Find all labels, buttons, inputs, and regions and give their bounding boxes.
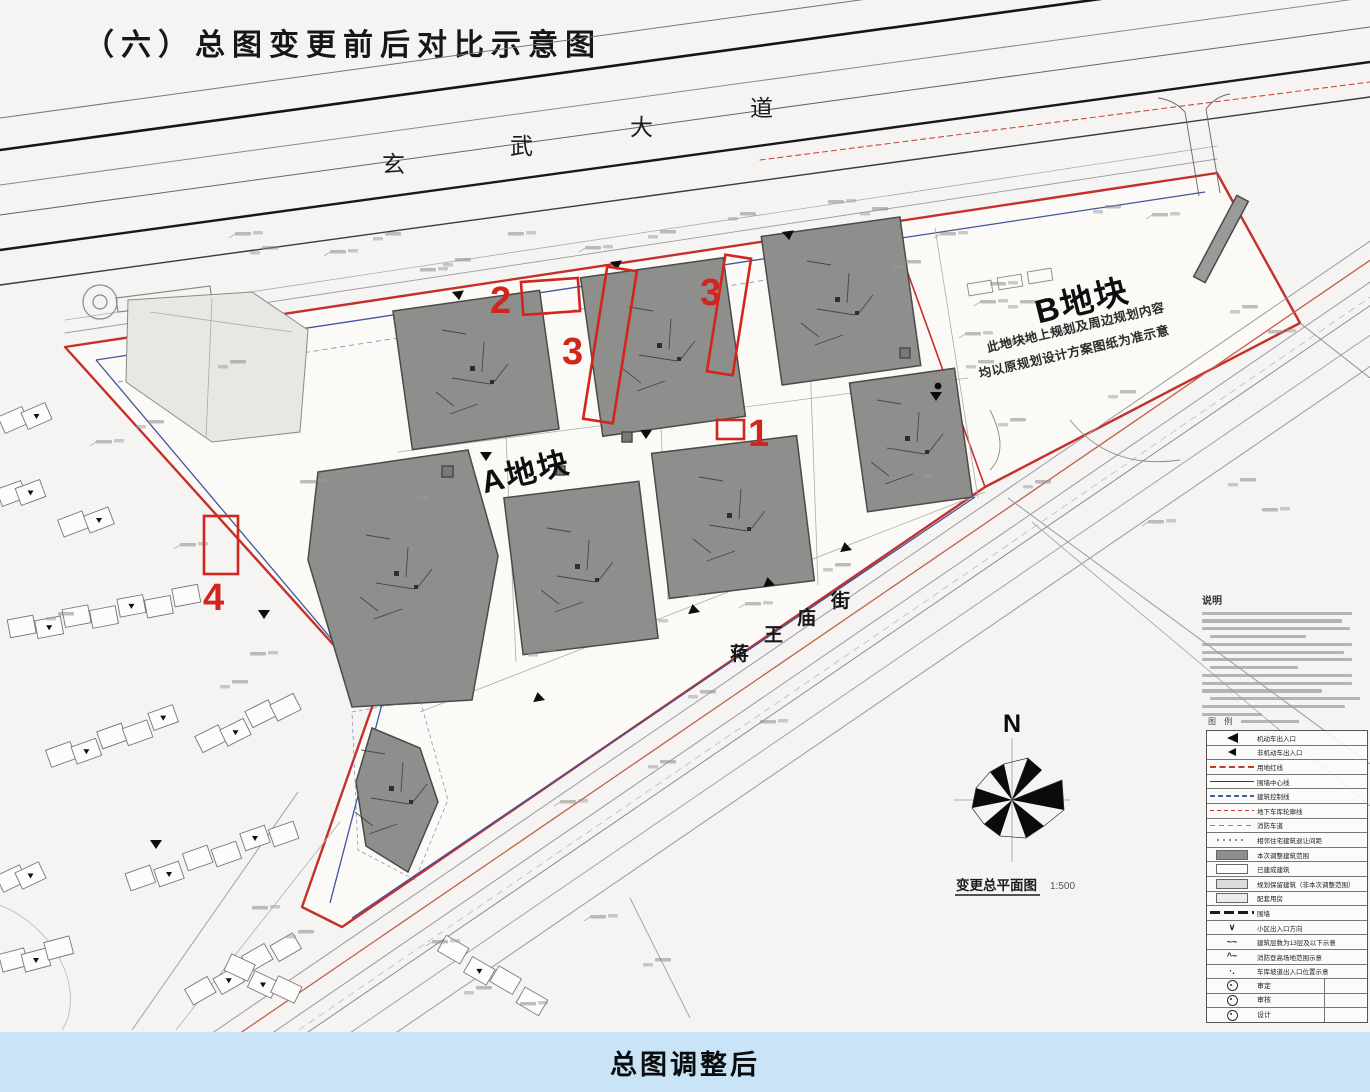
road-label-char: 大: [630, 115, 653, 140]
legend-row: 规划保留建筑（非本次调整范围）: [1207, 877, 1367, 892]
north-label: N: [1003, 710, 1021, 738]
footer-banner: 总图调整后: [0, 1032, 1370, 1092]
footer-banner-text: 总图调整后: [610, 1043, 760, 1082]
legend-heading: 图 例: [1208, 716, 1235, 727]
garage-outline-icon: [1210, 810, 1254, 811]
legend-footer-row: 审定: [1207, 979, 1367, 994]
bike-entry-icon: [1228, 748, 1236, 756]
legend-heading-rule: [1241, 720, 1299, 723]
stamp-icon: [1227, 995, 1238, 1006]
page: （六）总图变更前后对比示意图: [0, 0, 1370, 1092]
road-label-char: 道: [750, 96, 773, 121]
notes-text-line: [1210, 635, 1306, 638]
road-label-char: 街: [830, 589, 850, 612]
legend-row: ^~消防登高场地范围示意: [1207, 950, 1367, 965]
drawing-title-text: 变更总平面图: [956, 877, 1037, 893]
storey-mark-icon: ~~: [1227, 938, 1238, 947]
legend-row: 围墙中心线: [1207, 775, 1367, 790]
drawing-title: 变更总平面图 1:500: [955, 877, 1075, 895]
road-label-char: 庙: [797, 606, 816, 629]
adjusted-building-icon: [1216, 850, 1248, 860]
titleblock-divider: [1324, 994, 1367, 1008]
fire-lane-icon: [1210, 825, 1254, 826]
control-line-icon: [1210, 795, 1254, 796]
stamp-icon: [1227, 1010, 1238, 1021]
fence-icon: [1210, 911, 1254, 914]
notes-text-line: [1202, 619, 1342, 622]
legend-footer-row: 审核: [1207, 994, 1367, 1009]
legend-row: 用地红线: [1207, 760, 1367, 775]
notes-heading: 说明: [1202, 592, 1368, 607]
notes-text-line: [1202, 674, 1352, 677]
road-label-char: 蒋: [730, 642, 749, 665]
north-arrow: N: [954, 710, 1070, 862]
setback-icon: [1217, 839, 1247, 841]
titleblock-divider: [1324, 979, 1367, 993]
legend-row: 建筑控制线: [1207, 789, 1367, 804]
legend-row: 围墙: [1207, 906, 1367, 921]
legend-row: 配套用房: [1207, 892, 1367, 907]
notes-text-line: [1202, 705, 1345, 708]
legend-row: 本次调整建筑范围: [1207, 848, 1367, 863]
road-xuanwu-label: 玄 武 大 道: [382, 96, 773, 177]
notes-text-line: [1210, 697, 1360, 700]
legend-row: ∨小区出入口方向: [1207, 921, 1367, 936]
fire-area-icon: ^~: [1227, 952, 1238, 961]
legend-row: 非机动车出入口: [1207, 746, 1367, 761]
red-line-icon: [1210, 766, 1254, 768]
legend-row: ·.车库坡道出入口位置示意: [1207, 965, 1367, 980]
site-plan-drawing: 玄 武 大 道 蒋 王 庙 街 A地块 B地块 此地块地上规划及周边规划内容 均…: [0, 0, 1370, 1032]
notes-text-line: [1202, 627, 1350, 630]
legend-row: 已建成建筑: [1207, 862, 1367, 877]
legend-footer-row: 设计: [1207, 1008, 1367, 1022]
marker-number-1: 1: [748, 413, 769, 455]
legend-row: 相邻住宅建筑退让间距: [1207, 833, 1367, 848]
wall-line-icon: [1210, 781, 1254, 782]
vehicle-entry-icon: [1227, 733, 1238, 743]
legend-row: 消防车道: [1207, 819, 1367, 834]
ancillary-building-icon: [1216, 893, 1248, 903]
road-label-char: 武: [510, 134, 533, 159]
notes-text-line: [1202, 651, 1344, 654]
notes-text-line: [1202, 689, 1322, 692]
built-building-icon: [1216, 864, 1248, 874]
legend-table: 机动车出入口 非机动车出入口 用地红线 围墙中心线 建筑控制线 地下车库轮廓线 …: [1206, 730, 1368, 1023]
retained-building-icon: [1216, 879, 1248, 889]
notes-text-line: [1210, 666, 1298, 669]
notes-text-line: [1202, 658, 1352, 661]
legend-row: ~~建筑层数为13层及以下示意: [1207, 935, 1367, 950]
titleblock-divider: [1324, 1008, 1367, 1022]
legend-row: 地下车库轮廓线: [1207, 804, 1367, 819]
notes-block: 说明: [1202, 592, 1368, 721]
notes-text-line: [1202, 612, 1352, 615]
legend: 图 例 机动车出入口 非机动车出入口 用地红线 围墙中心线 建筑控制线 地下车库…: [1206, 716, 1368, 1023]
entry-direction-icon: ∨: [1229, 923, 1236, 932]
legend-row: 机动车出入口: [1207, 731, 1367, 746]
drawing-scale: 1:500: [1050, 881, 1075, 892]
road-label-char: 王: [764, 625, 783, 646]
ramp-mark-icon: ·.: [1229, 967, 1235, 976]
marker-number-2: 2: [490, 280, 511, 322]
stamp-icon: [1227, 980, 1238, 991]
marker-number-3a: 3: [562, 331, 583, 373]
marker-number-4: 4: [203, 577, 224, 619]
notes-text-line: [1202, 643, 1352, 646]
marker-number-3b: 3: [700, 272, 721, 314]
road-label-char: 玄: [382, 152, 405, 177]
notes-text-line: [1202, 682, 1352, 685]
